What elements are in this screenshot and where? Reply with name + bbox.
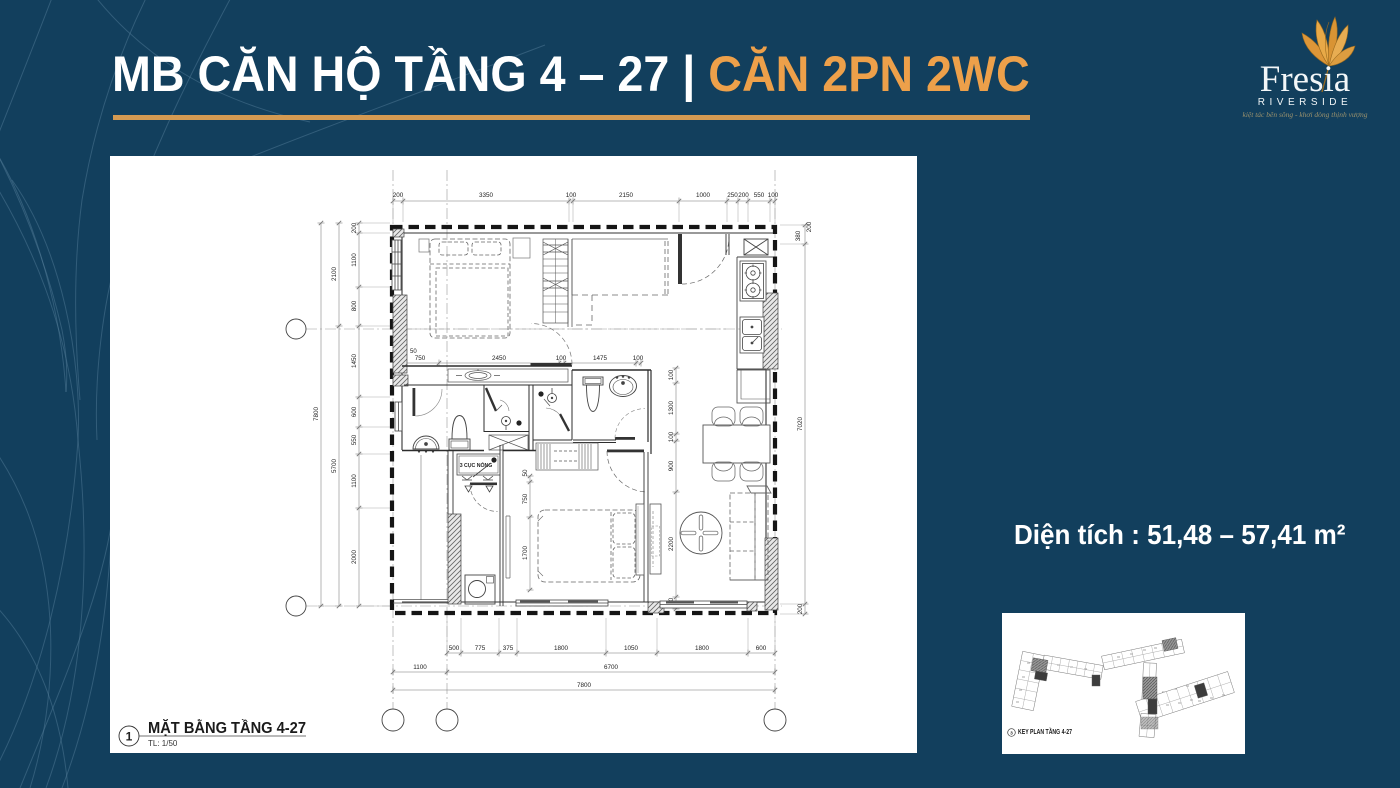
- svg-text:Fresia: Fresia: [1260, 59, 1350, 100]
- svg-text:1800: 1800: [554, 645, 569, 652]
- svg-text:550: 550: [754, 192, 765, 199]
- svg-text:1700: 1700: [522, 546, 529, 561]
- svg-text:1450: 1450: [351, 354, 358, 369]
- svg-text:100: 100: [566, 192, 577, 199]
- svg-text:100: 100: [633, 355, 644, 362]
- svg-text:2000: 2000: [351, 550, 358, 565]
- svg-text:TL: 1/50: TL: 1/50: [148, 739, 178, 748]
- svg-text:1300: 1300: [668, 401, 675, 416]
- svg-text:2150: 2150: [619, 192, 634, 199]
- svg-text:50: 50: [522, 469, 529, 477]
- svg-text:800: 800: [351, 300, 358, 311]
- svg-text:50: 50: [410, 349, 417, 355]
- svg-text:2100: 2100: [331, 267, 338, 282]
- svg-text:100: 100: [768, 192, 779, 199]
- svg-text:KEY PLAN TẦNG 4-27: KEY PLAN TẦNG 4-27: [1018, 726, 1072, 736]
- svg-text:200: 200: [806, 221, 813, 232]
- svg-text:7800: 7800: [313, 407, 320, 422]
- svg-text:100: 100: [556, 355, 567, 362]
- svg-text:1: 1: [126, 730, 133, 744]
- svg-text:kiệt tác bên sông - khơi dòng: kiệt tác bên sông - khơi dòng thịnh vượn…: [1243, 110, 1368, 119]
- svg-text:MẶT BẰNG TẦNG 4-27: MẶT BẰNG TẦNG 4-27: [148, 719, 306, 737]
- svg-text:3 CỤC NÓNG: 3 CỤC NÓNG: [460, 461, 493, 469]
- svg-text:2200: 2200: [668, 537, 675, 552]
- svg-text:750: 750: [415, 355, 426, 362]
- svg-text:200: 200: [738, 192, 749, 199]
- svg-text:600: 600: [756, 645, 767, 652]
- svg-text:100: 100: [668, 369, 675, 380]
- svg-text:1100: 1100: [351, 474, 358, 488]
- svg-text:200: 200: [393, 192, 404, 199]
- svg-text:1050: 1050: [624, 645, 639, 652]
- svg-text:200: 200: [797, 603, 804, 614]
- svg-text:900: 900: [668, 460, 675, 471]
- svg-text:200: 200: [351, 222, 358, 233]
- svg-text:600: 600: [351, 406, 358, 417]
- svg-text:7020: 7020: [797, 417, 804, 432]
- svg-text:250: 250: [727, 192, 738, 199]
- svg-text:100: 100: [668, 431, 675, 442]
- svg-text:2450: 2450: [492, 355, 507, 362]
- svg-text:500: 500: [449, 645, 460, 652]
- svg-text:1800: 1800: [695, 645, 710, 652]
- svg-text:375: 375: [503, 645, 514, 652]
- svg-text:RIVERSIDE: RIVERSIDE: [1258, 97, 1352, 108]
- svg-text:3: 3: [1010, 731, 1013, 736]
- svg-text:775: 775: [475, 645, 486, 652]
- svg-text:6700: 6700: [604, 664, 619, 671]
- svg-text:380: 380: [795, 230, 802, 241]
- svg-text:1000: 1000: [696, 192, 711, 199]
- svg-text:5700: 5700: [331, 459, 338, 474]
- svg-text:7800: 7800: [577, 682, 592, 689]
- svg-text:750: 750: [522, 493, 529, 504]
- svg-text:3350: 3350: [479, 192, 494, 199]
- svg-text:550: 550: [351, 434, 358, 445]
- svg-text:1100: 1100: [413, 664, 427, 671]
- svg-text:1475: 1475: [593, 355, 608, 362]
- svg-text:1100: 1100: [351, 253, 358, 267]
